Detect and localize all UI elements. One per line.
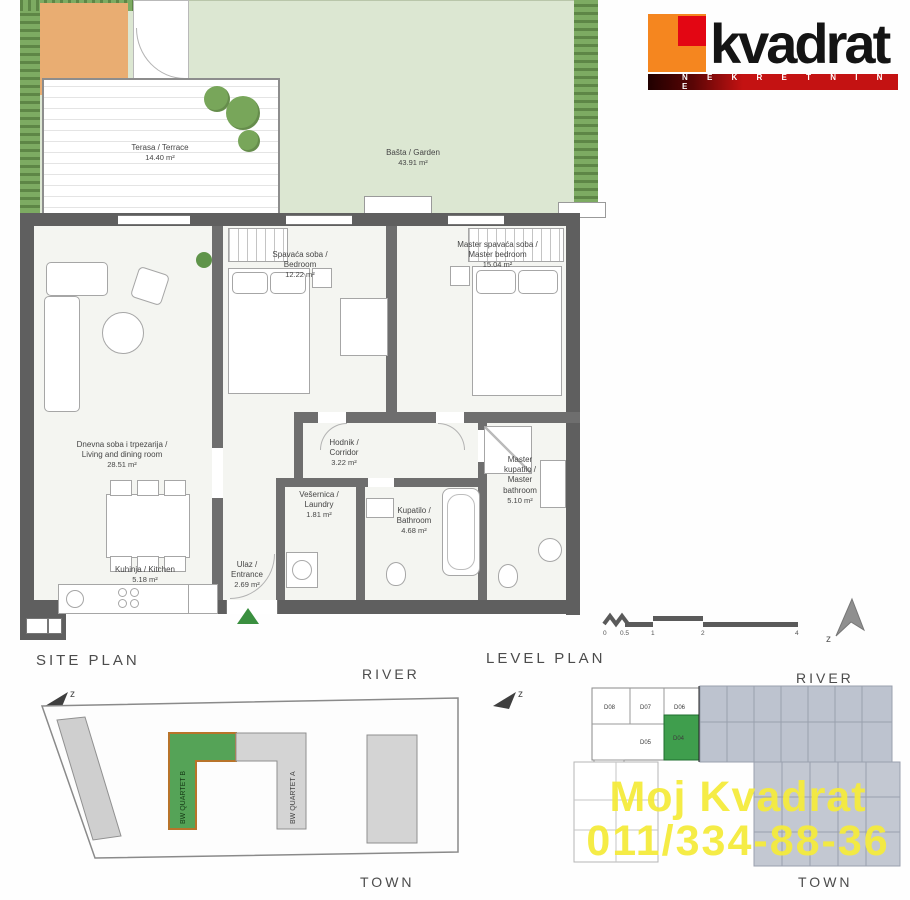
level-compass-icon: z <box>490 684 530 714</box>
logo-brand-text: kvadrat <box>710 16 888 72</box>
corridor-label: Hodnik / Corridor 3.22 m² <box>304 438 384 468</box>
entrance-marker-icon <box>237 608 259 624</box>
entrance-label: Ulaz / Entrance 2.69 m² <box>216 560 278 590</box>
shaft-box <box>26 618 48 634</box>
bathroom-name-sr: Kupatilo / <box>378 506 450 516</box>
scale-bar-segment <box>703 622 798 627</box>
dining-chair <box>164 480 186 496</box>
north-arrow-icon: z <box>824 596 872 646</box>
wall-living-bedroom <box>212 226 223 448</box>
dining-chair <box>137 480 159 496</box>
scale-bar-segment <box>653 616 703 621</box>
scale-tick-1: 1 <box>651 630 655 637</box>
living-name-sr: Dnevna soba i trpezarija / <box>42 440 202 450</box>
dining-chair <box>110 480 132 496</box>
watermark: Moj Kvadrat 011/334-88-36 <box>568 776 908 864</box>
kitchen-label: Kuhinja / Kitchen 5.18 m² <box>90 565 200 585</box>
unit-d07-label: D07 <box>640 705 652 711</box>
level-town-label: TOWN <box>798 874 853 890</box>
scale-tick-0: 0 <box>603 630 607 637</box>
unit-d06-label: D06 <box>674 705 686 711</box>
toilet <box>386 562 406 586</box>
entrance-name-en: Entrance <box>216 570 278 580</box>
bedroom-dresser <box>340 298 388 356</box>
terrace-area: 14.40 m² <box>90 153 230 163</box>
level-plan-title: LEVEL PLAN <box>486 650 606 667</box>
master-sink <box>538 538 562 562</box>
watermark-line2: 011/334-88-36 <box>568 820 908 864</box>
site-building <box>367 735 417 843</box>
master-bedroom-area: 15.04 m² <box>425 260 570 270</box>
corridor-name-en: Corridor <box>304 448 384 458</box>
master-bath-l4: bathroom <box>490 486 550 496</box>
door-gap <box>368 478 394 487</box>
master-bath-area: 5.10 m² <box>490 496 550 506</box>
plant-icon <box>196 252 212 268</box>
level-wing-shaded <box>700 686 892 762</box>
garden-name: Bašta / Garden <box>343 148 483 158</box>
unit-d04-label: D04 <box>673 736 685 742</box>
tree-icon <box>226 96 260 130</box>
level-compass-label: z <box>518 689 523 700</box>
master-bath-l2: kupatilo / <box>490 465 550 475</box>
coffee-table <box>102 312 144 354</box>
door-gap <box>436 412 464 423</box>
bathroom-name-en: Bathroom <box>378 516 450 526</box>
bedroom-name-en: Bedroom <box>235 260 365 270</box>
hedge-right <box>574 0 598 215</box>
master-bedroom-name-sr: Master spavaća soba / <box>425 240 570 250</box>
unit-d08-label: D08 <box>604 705 616 711</box>
master-bedroom-label: Master spavaća soba / Master bedroom 15.… <box>425 240 570 270</box>
scale-tick-4: 4 <box>795 630 799 637</box>
stove-burner <box>130 599 139 608</box>
site-river-label: RIVER <box>362 666 420 682</box>
bathroom-label: Kupatilo / Bathroom 4.68 m² <box>378 506 450 536</box>
laundry-label: Vešernica / Laundry 1.81 m² <box>283 490 355 520</box>
master-toilet <box>498 564 518 588</box>
scale-tick-05: 0.5 <box>620 630 629 637</box>
hedge-left <box>20 0 40 232</box>
door-gap <box>212 448 223 498</box>
dining-table <box>106 494 190 558</box>
watermark-line1: Moj Kvadrat <box>568 776 908 820</box>
bedroom-area: 12.22 m² <box>235 270 365 280</box>
stove-burner <box>118 599 127 608</box>
living-area: 28.51 m² <box>42 460 202 470</box>
logo-red-square-icon <box>678 16 706 46</box>
wall-corridor-left <box>294 412 303 482</box>
kvadrat-logo: kvadrat N E K R E T N I N E <box>640 6 906 98</box>
master-bathroom-label: Master kupatilo / Master bathroom 5.10 m… <box>490 455 550 506</box>
site-plan-title: SITE PLAN <box>36 652 140 669</box>
stove-burner <box>118 588 127 597</box>
unit-d05-label: D05 <box>640 740 652 746</box>
corridor-name-sr: Hodnik / <box>304 438 384 448</box>
master-bedroom-name-en: Master bedroom <box>425 250 570 260</box>
bathroom-area: 4.68 m² <box>378 526 450 536</box>
site-building-a-label: BW QUARTET A <box>290 771 297 824</box>
scale-bar-segment <box>625 622 653 627</box>
kitchen-sink <box>66 590 84 608</box>
pillow <box>518 270 558 294</box>
sofa <box>46 262 108 296</box>
pillow <box>476 270 516 294</box>
laundry-name-en: Laundry <box>283 500 355 510</box>
shaft-box <box>48 618 62 634</box>
entrance-name-sr: Ulaz / <box>216 560 278 570</box>
living-room-label: Dnevna soba i trpezarija / Living and di… <box>42 440 202 470</box>
floorplan-page: Terasa / Terrace 14.40 m² Bašta / Garden… <box>0 0 910 900</box>
laundry-name-sr: Vešernica / <box>283 490 355 500</box>
site-plan-map: BW QUARTET B BW QUARTET A <box>25 688 470 873</box>
site-town-label: TOWN <box>360 874 415 890</box>
bedroom-name-sr: Spavaća soba / <box>235 250 365 260</box>
bathtub-inner <box>447 494 475 570</box>
sofa <box>44 296 80 412</box>
window <box>286 215 352 225</box>
living-name-en: Living and dining room <box>42 450 202 460</box>
site-building-b-label: BW QUARTET B <box>180 771 187 824</box>
logo-tagline-bar: N E K R E T N I N E <box>648 74 898 90</box>
wall-left <box>20 213 34 640</box>
entrance-area: 2.69 m² <box>216 580 278 590</box>
tree-icon <box>238 130 260 152</box>
window <box>118 215 190 225</box>
terrace-label: Terasa / Terrace 14.40 m² <box>90 143 230 163</box>
kitchen-name: Kuhinja / Kitchen <box>90 565 200 575</box>
north-arrow-label: z <box>826 634 831 645</box>
corridor-area: 3.22 m² <box>304 458 384 468</box>
laundry-area: 1.81 m² <box>283 510 355 520</box>
terrace-name: Terasa / Terrace <box>90 143 230 153</box>
window <box>448 215 504 225</box>
washer-door <box>292 560 312 580</box>
wall-laundry-top <box>276 478 365 487</box>
fridge <box>188 584 218 614</box>
logo-tagline-text: N E K R E T N I N E <box>648 73 898 91</box>
garden-label: Bašta / Garden 43.91 m² <box>343 148 483 168</box>
stove-burner <box>130 588 139 597</box>
kitchen-area: 5.18 m² <box>90 575 200 585</box>
master-bath-l1: Master <box>490 455 550 465</box>
garden-area-value: 43.91 m² <box>343 158 483 168</box>
wall-laundry-bath <box>356 478 365 600</box>
bedroom-label: Spavaća soba / Bedroom 12.22 m² <box>235 250 365 280</box>
door-gap <box>318 412 346 423</box>
scale-tick-2: 2 <box>701 630 705 637</box>
master-bath-l3: Master <box>490 475 550 485</box>
